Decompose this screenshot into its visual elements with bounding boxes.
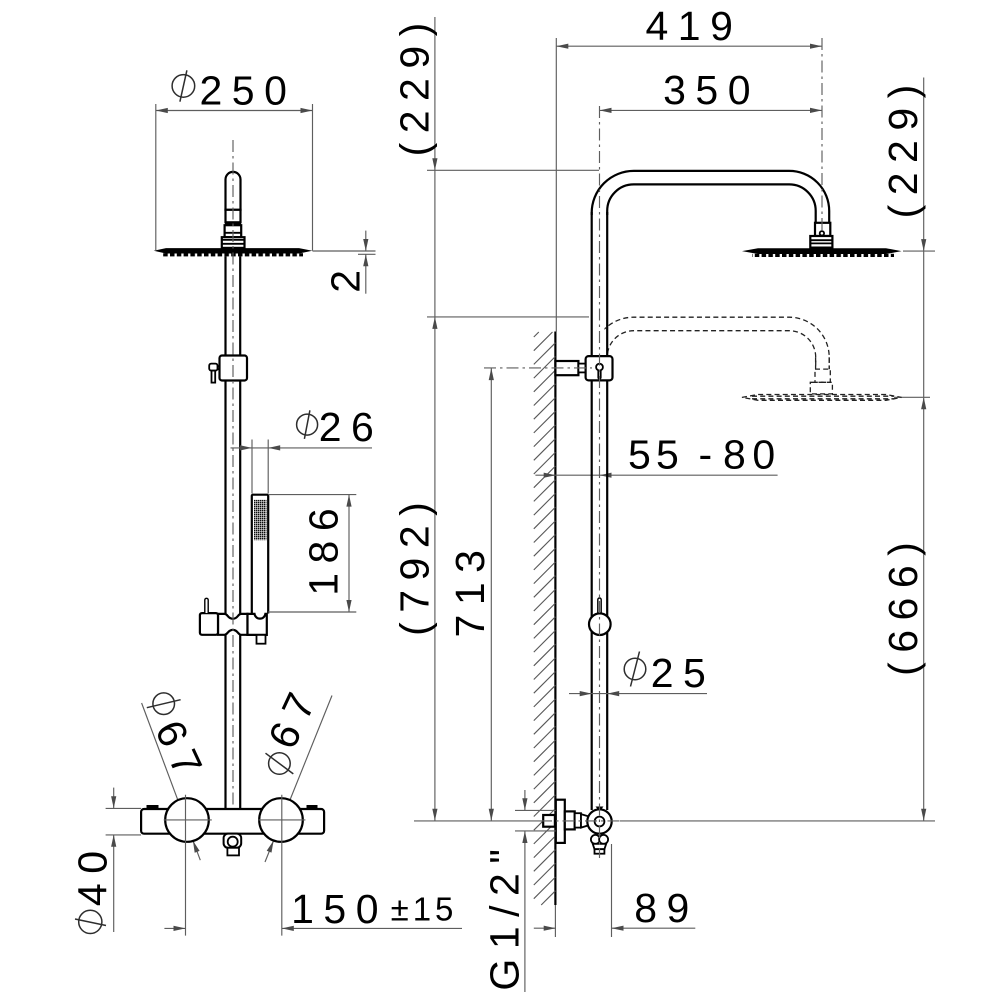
svg-text:80: 80 [723,432,782,478]
svg-text:55: 55 [628,432,684,478]
svg-text:(229): (229) [880,75,926,218]
svg-text:186: 186 [301,499,347,596]
svg-text:713: 713 [447,541,493,638]
svg-text:89: 89 [634,885,699,931]
svg-text:26: 26 [319,404,384,450]
svg-text:(792): (792) [392,493,438,636]
svg-text:419: 419 [646,3,743,49]
svg-text:150: 150 [291,886,388,932]
svg-text:(666): (666) [880,533,926,676]
svg-text:±15: ±15 [391,891,458,928]
svg-text:G1/2": G1/2" [482,840,528,991]
svg-text:25: 25 [651,650,716,696]
svg-text:40: 40 [69,841,115,906]
svg-text:-: - [699,432,713,478]
svg-text:250: 250 [200,67,297,113]
svg-text:(229): (229) [392,13,438,156]
svg-text:350: 350 [663,67,760,113]
svg-text:2: 2 [322,270,368,293]
